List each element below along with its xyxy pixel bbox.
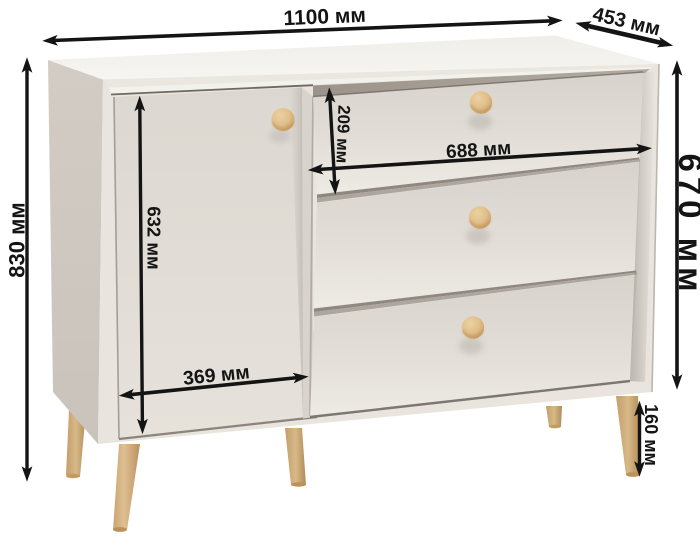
svg-text:1100 мм: 1100 мм: [283, 4, 366, 30]
svg-text:209 мм: 209 мм: [332, 105, 353, 164]
svg-text:830 мм: 830 мм: [5, 202, 30, 277]
svg-text:632 мм: 632 мм: [144, 206, 165, 269]
svg-text:160 мм: 160 мм: [641, 404, 661, 466]
svg-text:670 мм: 670 мм: [672, 153, 700, 296]
svg-text:688 мм: 688 мм: [445, 138, 511, 163]
